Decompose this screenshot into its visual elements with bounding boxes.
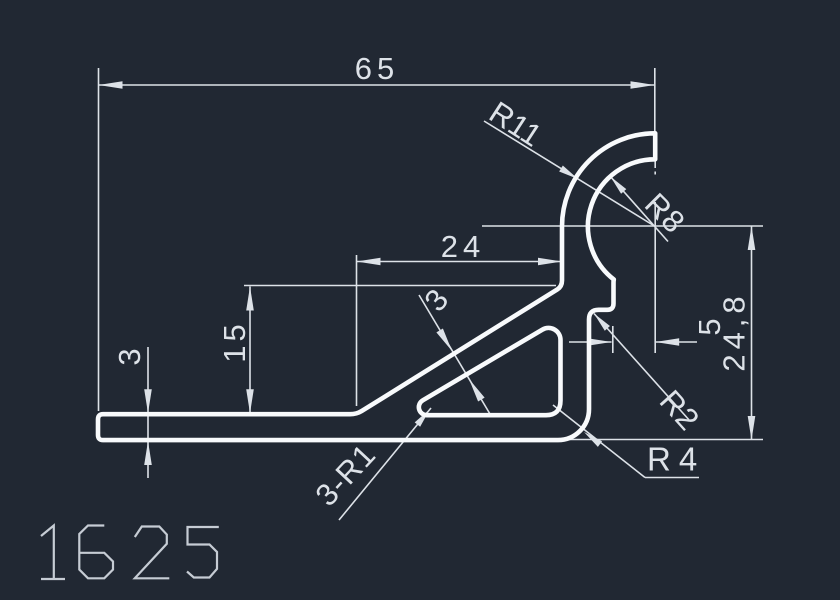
svg-text:24,8: 24,8 xyxy=(717,291,752,371)
svg-text:65: 65 xyxy=(355,51,399,86)
svg-text:15: 15 xyxy=(217,320,252,362)
svg-text:3: 3 xyxy=(112,343,147,365)
svg-text:24: 24 xyxy=(441,229,485,264)
svg-text:R4: R4 xyxy=(647,441,705,478)
